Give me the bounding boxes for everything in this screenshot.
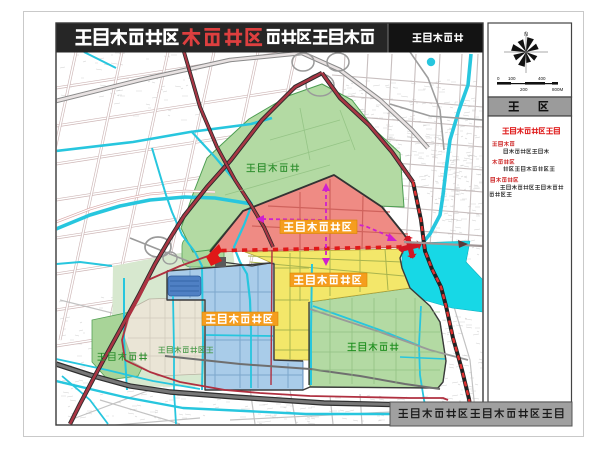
svg-text:N: N: [524, 32, 528, 38]
svg-text:200: 200: [520, 87, 528, 92]
svg-text:100: 100: [508, 76, 516, 81]
svg-text:800M: 800M: [552, 87, 564, 92]
svg-text:400: 400: [538, 76, 546, 81]
